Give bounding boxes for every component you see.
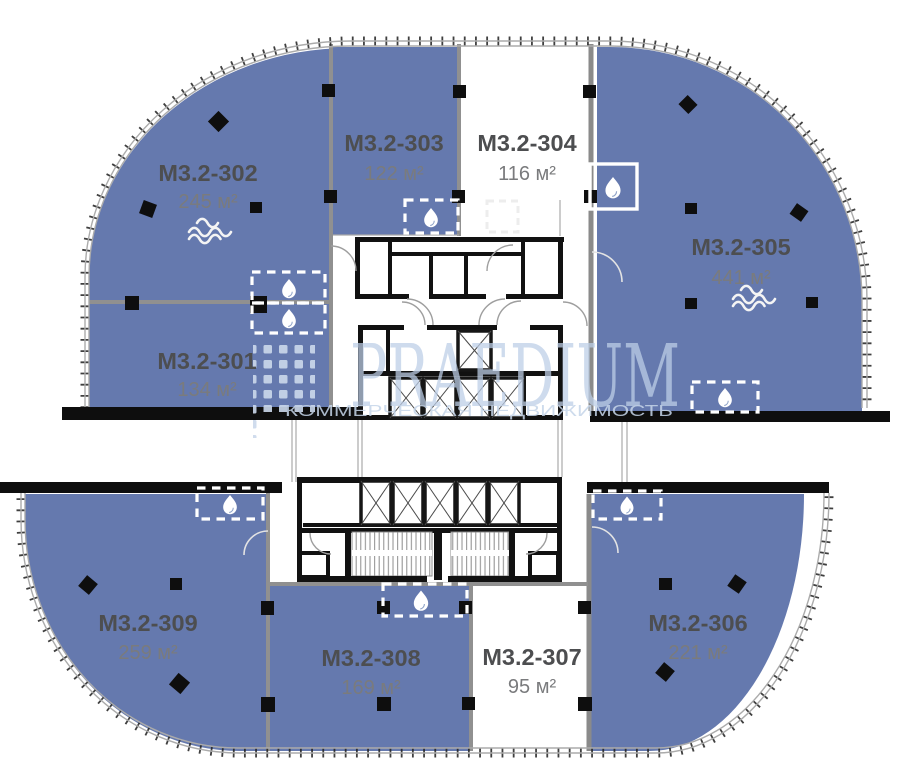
unit-label: M3.2-308 — [321, 645, 420, 671]
watermark-dots-logo-stem — [253, 412, 263, 438]
elevator-bank-lower — [361, 481, 519, 525]
unit-area: 259 м² — [118, 642, 178, 664]
unit-area: 221 м² — [668, 642, 728, 664]
unit-label: M3.2-304 — [477, 130, 576, 156]
unit-label: M3.2-305 — [691, 234, 790, 260]
floor-plan-page: PRAEDIUM КОММЕРЧЕСКАЯ НЕДВИЖИМОСТЬ M3.2-… — [0, 0, 898, 768]
unit-area: 116 м² — [498, 163, 556, 185]
unit-label: M3.2-307 — [482, 644, 581, 670]
unit-area: 122 м² — [364, 163, 424, 185]
unit-area: 441 м² — [711, 267, 771, 289]
unit-label: M3.2-309 — [98, 610, 197, 636]
watermark-subtitle: КОММЕРЧЕСКАЯ НЕДВИЖИМОСТЬ — [285, 403, 673, 420]
unit-area: 95 м² — [508, 676, 557, 698]
watermark-dots-logo — [253, 340, 315, 412]
unit-area: 245 м² — [178, 191, 238, 213]
unit-area: 134 м² — [177, 379, 237, 401]
unit-area: 169 м² — [341, 677, 401, 699]
unit-label: M3.2-302 — [158, 160, 257, 186]
unit-label: M3.2-303 — [344, 130, 443, 156]
unit-label: M3.2-301 — [157, 348, 256, 374]
floor-plan-canvas: PRAEDIUM КОММЕРЧЕСКАЯ НЕДВИЖИМОСТЬ M3.2-… — [0, 0, 898, 768]
unit-label: M3.2-306 — [648, 610, 747, 636]
stairwells — [345, 528, 515, 580]
